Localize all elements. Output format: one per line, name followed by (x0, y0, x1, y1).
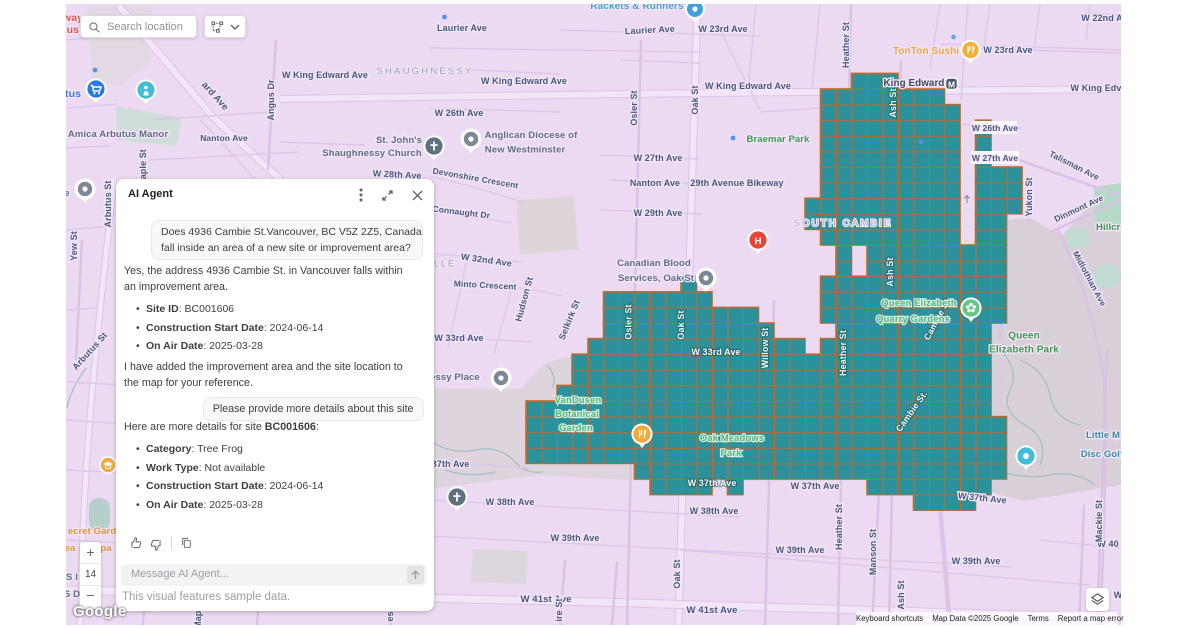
svg-text:S I: S I (66, 572, 78, 583)
svg-text:SOUTH CAMBIE: SOUTH CAMBIE (794, 218, 893, 229)
svg-text:St. John's: St. John's (376, 135, 422, 146)
svg-text:Anglican Diocese of: Anglican Diocese of (485, 130, 578, 141)
svg-text:Amica Arbutus Manor: Amica Arbutus Manor (68, 129, 168, 140)
svg-text:Oak St: Oak St (672, 559, 682, 588)
svg-text:Hillcre: Hillcre (1096, 222, 1121, 233)
svg-text:Arbutus St: Arbutus St (103, 181, 113, 228)
svg-text:ire St: ire St (554, 598, 564, 621)
svg-text:W: W (1114, 590, 1121, 600)
svg-text:W 27th Ave: W 27th Ave (634, 153, 683, 163)
svg-text:W King Edward Ave: W King Edward Ave (705, 81, 791, 91)
svg-text:Little M: Little M (1086, 430, 1120, 441)
svg-text:SHAUGHNESSY: SHAUGHNESSY (376, 66, 473, 77)
svg-text:New Westminster: New Westminster (485, 145, 566, 156)
svg-text:Oak St: Oak St (676, 310, 686, 339)
svg-text:e: e (66, 188, 70, 198)
svg-text:Disc Golf: Disc Golf (1081, 449, 1121, 460)
svg-text:Braemar Park: Braemar Park (747, 134, 811, 145)
svg-text:tus: tus (66, 88, 81, 100)
svg-text:W King Edward Ave: W King Edward Ave (282, 70, 368, 80)
svg-text:W 39th Ave: W 39th Ave (776, 545, 825, 555)
svg-text:ecret Gard: ecret Gard (68, 526, 117, 537)
svg-text:Nanton Ave: Nanton Ave (200, 133, 248, 143)
svg-text:W 41st Ave: W 41st Ave (687, 605, 738, 616)
svg-text:Mackie St: Mackie St (1094, 500, 1104, 542)
svg-text:TonTon Sushi: TonTon Sushi (893, 46, 959, 57)
svg-text:Quarry Gardens: Quarry Gardens (876, 314, 950, 325)
svg-text:Osler St: Osler St (629, 90, 639, 125)
svg-text:Ash St: Ash St (896, 580, 906, 609)
svg-text:Canadian Blood: Canadian Blood (617, 258, 691, 269)
svg-text:29th Avenue Bikeway: 29th Avenue Bikeway (690, 178, 783, 188)
svg-text:Laurier Ave: Laurier Ave (437, 23, 487, 33)
svg-text:Oak Meadows: Oak Meadows (700, 433, 764, 444)
svg-text:W 26th Ave: W 26th Ave (435, 108, 484, 118)
svg-text:Angus Dr: Angus Dr (266, 79, 276, 121)
svg-text:W 37th Ave: W 37th Ave (791, 481, 840, 491)
svg-text:Heather St: Heather St (834, 504, 844, 550)
svg-text:Osler St: Osler St (624, 304, 634, 339)
svg-text:Shaughnessy Church: Shaughnessy Church (322, 148, 422, 159)
svg-text:W 23rd Ave: W 23rd Ave (698, 24, 747, 34)
svg-text:Yukon St: Yukon St (1024, 177, 1034, 216)
svg-text:Nanton Ave: Nanton Ave (630, 178, 680, 188)
svg-text:W 26th Ave: W 26th Ave (972, 123, 1018, 133)
svg-text:S D: S D (66, 589, 80, 600)
svg-text:Park: Park (720, 448, 742, 459)
svg-text:pa: pa (100, 543, 112, 554)
svg-text:W King Edv: W King Edv (1071, 83, 1122, 93)
svg-text:VanDusen: VanDusen (555, 395, 602, 406)
svg-text:W 29th Ave: W 29th Ave (634, 208, 683, 218)
svg-text:W 39th Ave: W 39th Ave (551, 533, 600, 543)
svg-text:H: H (755, 236, 762, 247)
svg-text:W 39th Ave: W 39th Ave (952, 556, 1001, 566)
svg-text:Garden: Garden (559, 423, 593, 434)
svg-text:Heather St: Heather St (838, 330, 848, 376)
svg-text:Ash St: Ash St (888, 88, 898, 117)
svg-text:Ash St: Ash St (885, 257, 895, 286)
svg-text:King Edward: King Edward (884, 78, 945, 89)
svg-text:Heather St: Heather St (841, 22, 851, 68)
svg-text:Manson St: Manson St (868, 529, 878, 575)
svg-text:Willow St: Willow St (760, 328, 770, 369)
svg-text:W 33rd Ave: W 33rd Ave (691, 347, 740, 357)
svg-text:W 22nd A: W 22nd A (1081, 13, 1121, 23)
svg-text:Queen Elizabeth: Queen Elizabeth (881, 298, 957, 309)
svg-text:W 27th Ave: W 27th Ave (972, 153, 1018, 163)
svg-text:Services, Oak St: Services, Oak St (618, 273, 695, 284)
svg-text:Elizabeth Park: Elizabeth Park (989, 345, 1059, 356)
svg-text:M: M (948, 79, 955, 89)
svg-text:Oak St: Oak St (690, 85, 700, 114)
svg-text:Rackets & Runners: Rackets & Runners (590, 4, 684, 12)
svg-text:W King Edward Ave: W King Edward Ave (481, 76, 567, 86)
svg-text:Yew St: Yew St (69, 231, 79, 261)
svg-text:W 38th Ave: W 38th Ave (690, 506, 739, 516)
svg-text:W 23rd Ave: W 23rd Ave (983, 45, 1032, 55)
svg-text:W 33rd Ave: W 33rd Ave (434, 333, 483, 343)
svg-text:LLE: LLE (434, 259, 456, 269)
svg-text:Queen: Queen (1008, 331, 1040, 342)
svg-text:Botanical: Botanical (555, 409, 599, 420)
svg-text:W 38th Ave: W 38th Ave (486, 497, 535, 507)
svg-text:ea: ea (66, 543, 76, 554)
svg-text:W 37th Ave: W 37th Ave (688, 478, 737, 488)
svg-text:tus: tus (66, 24, 79, 36)
